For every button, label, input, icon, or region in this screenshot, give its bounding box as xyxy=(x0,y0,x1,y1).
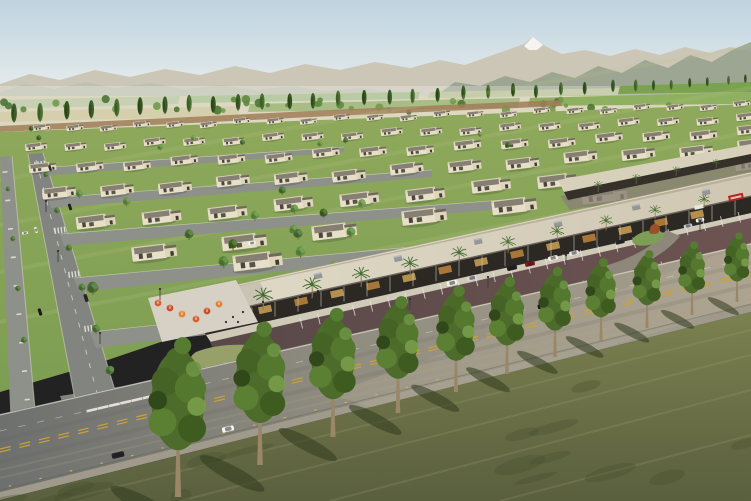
ornamental-red-tree xyxy=(650,224,660,234)
aerial-rendering xyxy=(0,0,751,501)
scene-canvas xyxy=(0,0,751,501)
